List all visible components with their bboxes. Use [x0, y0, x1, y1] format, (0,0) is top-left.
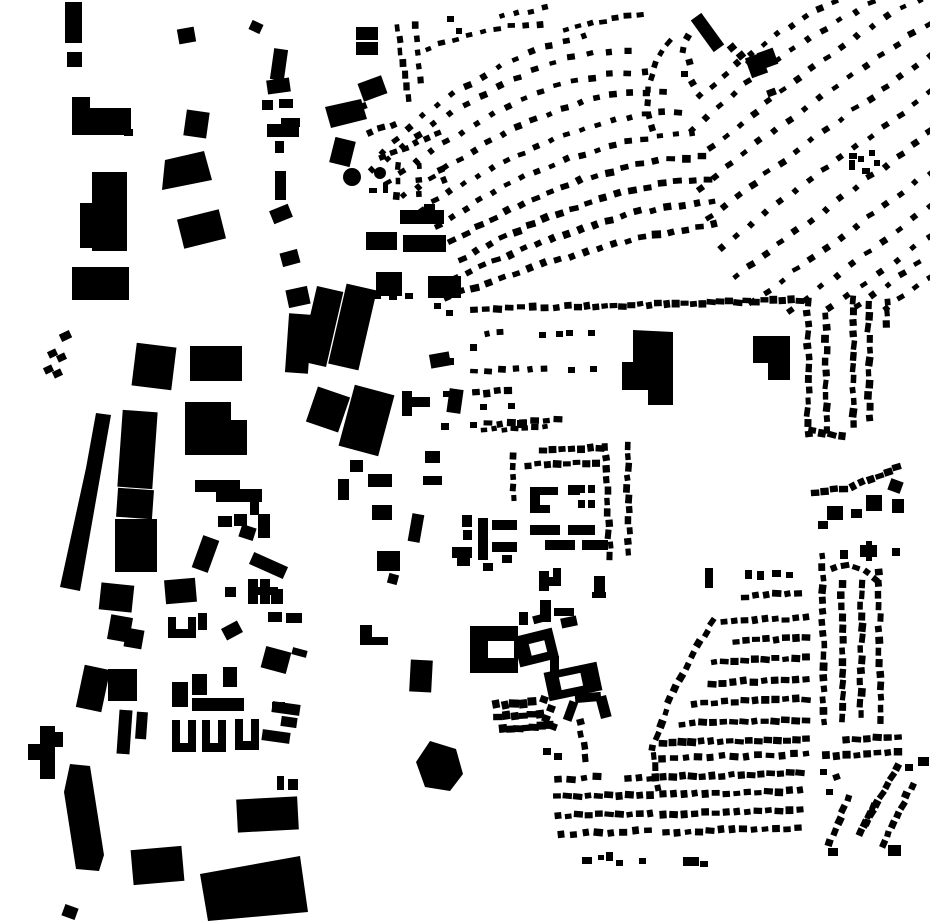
- house-footprint: [553, 416, 562, 423]
- house-footprint: [472, 389, 480, 396]
- house-footprint: [534, 461, 541, 467]
- house-footprint: [806, 353, 813, 360]
- house-footprint: [747, 772, 756, 779]
- house-footprint: [554, 812, 561, 819]
- house-footprint: [849, 319, 857, 326]
- house-footprint: [527, 697, 537, 706]
- building-footprint: [192, 674, 207, 695]
- house-footprint: [415, 177, 422, 183]
- house-footprint: [769, 296, 777, 304]
- house-footprint: [811, 489, 820, 496]
- house-footprint: [850, 363, 856, 372]
- house-footprint: [482, 306, 490, 312]
- house-footprint: [739, 825, 747, 832]
- building-footprint: [492, 542, 517, 552]
- house-footprint: [663, 300, 670, 309]
- house-footprint: [840, 636, 847, 644]
- house-footprint: [858, 655, 866, 664]
- house-footprint: [498, 366, 506, 373]
- house-footprint: [648, 744, 656, 751]
- house-footprint: [773, 737, 782, 745]
- house-footprint: [851, 340, 858, 350]
- building-footprint: [483, 563, 493, 571]
- house-footprint: [821, 641, 827, 649]
- house-footprint: [720, 619, 727, 625]
- house-footprint: [751, 718, 758, 725]
- house-footprint: [680, 810, 688, 818]
- house-footprint: [504, 387, 512, 394]
- house-footprint: [670, 790, 677, 798]
- building-footprint: [820, 769, 827, 775]
- building-footprint: [457, 558, 470, 566]
- building-footprint: [556, 331, 563, 337]
- house-footprint: [818, 619, 825, 626]
- house-footprint: [573, 460, 581, 465]
- house-footprint: [602, 443, 608, 451]
- house-footprint: [824, 415, 830, 422]
- house-footprint: [718, 773, 726, 780]
- house-footprint: [708, 771, 716, 780]
- building-footprint: [250, 502, 259, 515]
- house-footprint: [819, 662, 827, 671]
- house-footprint: [627, 302, 635, 308]
- building-footprint: [369, 188, 377, 193]
- building-footprint: [818, 521, 828, 529]
- house-footprint: [785, 806, 793, 814]
- house-footprint: [839, 658, 846, 666]
- building-footprint: [411, 397, 430, 407]
- building-footprint: [446, 310, 453, 316]
- building-footprint: [862, 168, 870, 174]
- house-footprint: [625, 791, 634, 799]
- house-footprint: [687, 738, 697, 747]
- house-footprint: [605, 519, 613, 527]
- house-footprint: [406, 94, 412, 102]
- house-footprint: [865, 312, 873, 321]
- house-footprint: [802, 653, 810, 660]
- house-footprint: [772, 825, 780, 832]
- house-footprint: [850, 352, 857, 361]
- house-footprint: [777, 770, 785, 777]
- house-footprint: [669, 811, 678, 818]
- house-footprint: [582, 754, 589, 763]
- house-footprint: [704, 177, 713, 183]
- house-footprint: [819, 674, 827, 681]
- house-footprint: [867, 403, 874, 411]
- house-footprint: [744, 809, 751, 816]
- house-footprint: [875, 637, 883, 645]
- house-footprint: [819, 597, 826, 604]
- house-footprint: [583, 302, 590, 310]
- building-footprint: [443, 391, 450, 397]
- house-footprint: [770, 717, 780, 725]
- building-footprint: [218, 516, 232, 527]
- house-footprint: [805, 397, 810, 404]
- building-footprint: [275, 141, 284, 153]
- house-footprint: [691, 810, 699, 817]
- house-footprint: [645, 86, 651, 92]
- building-footprint: [588, 485, 595, 493]
- house-footprint: [652, 762, 658, 771]
- house-footprint: [594, 793, 603, 799]
- building-footprint: [578, 485, 585, 493]
- house-footprint: [805, 297, 812, 306]
- house-footprint: [625, 453, 631, 460]
- house-footprint: [873, 750, 881, 756]
- house-footprint: [821, 685, 828, 692]
- house-footprint: [872, 734, 882, 742]
- house-footprint: [867, 335, 873, 343]
- house-footprint: [823, 392, 828, 400]
- house-footprint: [698, 300, 706, 307]
- house-footprint: [876, 671, 884, 678]
- house-footprint: [838, 603, 844, 611]
- building-footprint: [578, 500, 585, 508]
- house-footprint: [509, 699, 520, 707]
- house-footprint: [584, 792, 591, 799]
- building-footprint: [530, 525, 560, 535]
- building-footprint: [372, 505, 392, 520]
- house-footprint: [510, 474, 516, 480]
- building-footprint: [462, 515, 472, 527]
- house-footprint: [593, 828, 603, 836]
- house-footprint: [721, 697, 729, 704]
- house-footprint: [539, 447, 547, 453]
- house-footprint: [701, 790, 709, 798]
- house-footprint: [626, 89, 633, 96]
- house-footprint: [642, 68, 649, 75]
- house-footprint: [491, 426, 497, 432]
- building-footprint: [545, 540, 575, 550]
- building-footprint: [588, 330, 595, 336]
- house-footprint: [644, 99, 651, 106]
- house-footprint: [802, 676, 810, 683]
- house-footprint: [772, 590, 782, 597]
- building-footprint: [425, 451, 440, 463]
- house-footprint: [762, 591, 770, 599]
- house-footprint: [697, 737, 704, 744]
- house-footprint: [659, 790, 667, 797]
- building-footprint: [680, 47, 687, 54]
- house-footprint: [802, 634, 811, 641]
- building-footprint: [840, 550, 848, 559]
- house-footprint: [745, 737, 753, 744]
- building-footprint: [338, 479, 349, 500]
- house-footprint: [791, 655, 800, 663]
- house-footprint: [712, 790, 720, 796]
- house-footprint: [698, 773, 705, 780]
- house-footprint: [544, 461, 552, 469]
- building-footprint: [376, 272, 402, 296]
- house-footprint: [635, 774, 642, 782]
- house-footprint: [820, 575, 826, 582]
- house-footprint: [766, 753, 775, 759]
- house-footprint: [857, 602, 863, 610]
- house-footprint: [663, 202, 672, 210]
- house-footprint: [729, 719, 738, 725]
- house-footprint: [484, 368, 492, 374]
- house-footprint: [783, 738, 791, 744]
- building-footprint: [55, 732, 63, 747]
- building-footprint: [582, 857, 592, 864]
- house-footprint: [717, 738, 724, 745]
- house-footprint: [877, 716, 883, 724]
- house-footprint: [606, 552, 612, 561]
- house-footprint: [801, 697, 811, 704]
- house-footprint: [527, 711, 537, 717]
- house-footprint: [604, 791, 613, 798]
- building-footprint: [275, 171, 286, 200]
- house-footprint: [668, 773, 677, 781]
- building-footprint: [849, 153, 857, 159]
- house-footprint: [858, 688, 866, 697]
- house-footprint: [786, 786, 794, 794]
- house-footprint: [802, 718, 811, 724]
- building-footprint: [286, 613, 302, 623]
- house-footprint: [610, 303, 618, 308]
- house-footprint: [741, 617, 749, 623]
- building-footprint: [131, 846, 185, 885]
- house-footprint: [529, 302, 537, 310]
- house-footprint: [806, 386, 813, 393]
- house-footprint: [577, 445, 585, 453]
- building-footprint: [271, 589, 283, 604]
- house-footprint: [732, 639, 740, 645]
- house-footprint: [761, 615, 768, 623]
- house-footprint: [752, 637, 760, 642]
- house-footprint: [742, 637, 750, 644]
- house-footprint: [784, 590, 791, 597]
- house-footprint: [681, 227, 689, 235]
- house-footprint: [566, 776, 576, 783]
- house-footprint: [864, 391, 872, 400]
- building-footprint: [639, 858, 646, 864]
- building-footprint: [190, 346, 242, 381]
- building-footprint: [492, 520, 517, 530]
- house-footprint: [627, 527, 633, 534]
- house-footprint: [626, 811, 633, 817]
- house-footprint: [849, 330, 857, 337]
- house-footprint: [839, 703, 846, 711]
- house-footprint: [752, 591, 760, 598]
- house-footprint: [850, 420, 856, 428]
- house-footprint: [638, 234, 647, 241]
- house-footprint: [511, 495, 516, 501]
- house-footprint: [781, 716, 790, 723]
- house-footprint: [884, 309, 890, 316]
- house-footprint: [830, 485, 839, 492]
- house-footprint: [623, 12, 631, 18]
- house-footprint: [557, 830, 565, 838]
- house-footprint: [743, 789, 751, 796]
- house-footprint: [716, 298, 725, 304]
- building-footprint: [164, 578, 197, 605]
- house-footprint: [518, 699, 527, 709]
- house-footprint: [818, 563, 825, 571]
- house-footprint: [585, 812, 593, 818]
- house-footprint: [519, 419, 527, 425]
- building-footprint: [268, 612, 282, 622]
- building-footprint: [67, 52, 82, 67]
- building-footprint: [705, 568, 713, 588]
- house-footprint: [659, 810, 667, 818]
- house-footprint: [609, 91, 617, 98]
- building-footprint: [185, 402, 231, 455]
- building-footprint: [99, 582, 135, 612]
- house-footprint: [783, 826, 791, 832]
- house-footprint: [796, 806, 803, 813]
- house-footprint: [894, 748, 902, 755]
- house-footprint: [687, 772, 697, 780]
- house-footprint: [679, 772, 686, 780]
- house-footprint: [883, 734, 891, 741]
- house-footprint: [501, 427, 507, 433]
- house-footprint: [719, 719, 727, 725]
- house-footprint: [717, 825, 724, 833]
- house-footprint: [838, 432, 846, 441]
- house-footprint: [611, 14, 619, 21]
- house-footprint: [678, 722, 685, 728]
- house-footprint: [496, 420, 503, 428]
- house-footprint: [865, 301, 871, 309]
- building-footprint: [598, 855, 604, 860]
- house-footprint: [672, 300, 680, 308]
- building-footprint: [350, 460, 363, 472]
- building-footprint: [72, 267, 129, 300]
- house-footprint: [582, 828, 589, 836]
- house-footprint: [794, 590, 802, 597]
- house-footprint: [669, 739, 677, 747]
- house-footprint: [673, 131, 680, 137]
- building-footprint: [116, 488, 154, 519]
- building-footprint: [124, 129, 133, 136]
- house-footprint: [757, 770, 765, 777]
- house-footprint: [730, 658, 738, 665]
- house-footprint: [659, 89, 667, 95]
- house-footprint: [802, 613, 809, 621]
- house-footprint: [542, 424, 548, 430]
- house-footprint: [605, 529, 612, 539]
- building-footprint: [441, 423, 449, 430]
- circular-tank-footprint: [343, 168, 361, 186]
- house-footprint: [857, 667, 865, 674]
- house-footprint: [558, 446, 566, 452]
- house-footprint: [624, 48, 631, 54]
- house-footprint: [820, 696, 826, 703]
- house-footprint: [750, 679, 759, 686]
- building-footprint: [132, 343, 177, 391]
- house-footprint: [651, 752, 657, 760]
- house-footprint: [782, 617, 790, 622]
- house-footprint: [733, 791, 740, 797]
- building-footprint: [588, 500, 595, 508]
- house-footprint: [754, 790, 762, 796]
- house-footprint: [680, 790, 688, 798]
- house-footprint: [625, 516, 632, 524]
- building-footprint: [874, 160, 880, 166]
- house-footprint: [496, 329, 503, 335]
- house-footprint: [416, 191, 422, 197]
- house-footprint: [821, 335, 829, 343]
- house-footprint: [643, 184, 652, 191]
- house-footprint: [510, 463, 516, 470]
- house-footprint: [573, 793, 583, 800]
- house-footprint: [502, 710, 511, 719]
- house-footprint: [536, 21, 543, 28]
- building-footprint: [549, 577, 561, 586]
- house-footprint: [735, 739, 745, 745]
- house-footprint: [700, 700, 708, 706]
- house-footprint: [740, 658, 749, 664]
- house-footprint: [625, 494, 632, 503]
- building-footprint: [279, 99, 293, 108]
- house-footprint: [740, 697, 749, 704]
- building-footprint: [447, 16, 454, 22]
- house-footprint: [567, 53, 576, 60]
- house-footprint: [625, 462, 632, 471]
- house-footprint: [791, 717, 800, 724]
- house-footprint: [695, 224, 704, 230]
- building-footprint: [40, 726, 55, 779]
- building-footprint: [892, 548, 900, 556]
- house-footprint: [731, 617, 738, 624]
- house-footprint: [678, 202, 686, 210]
- house-footprint: [416, 63, 422, 70]
- house-footprint: [804, 419, 811, 427]
- house-footprint: [842, 736, 850, 744]
- house-footprint: [761, 696, 769, 704]
- house-footprint: [803, 310, 811, 317]
- house-footprint: [527, 366, 533, 373]
- house-footprint: [603, 476, 610, 484]
- house-footprint: [761, 719, 769, 724]
- building-footprint: [905, 764, 913, 771]
- building-footprint: [226, 420, 247, 455]
- building-footprint: [869, 150, 875, 156]
- house-footprint: [740, 676, 748, 684]
- house-footprint: [772, 615, 779, 622]
- house-footprint: [581, 775, 588, 782]
- house-footprint: [706, 754, 714, 762]
- house-footprint: [782, 696, 789, 702]
- building-footprint: [373, 293, 381, 299]
- house-footprint: [492, 699, 501, 708]
- building-footprint: [543, 748, 551, 755]
- house-footprint: [394, 24, 399, 32]
- building-footprint: [434, 303, 441, 309]
- house-footprint: [822, 369, 830, 376]
- house-footprint: [765, 807, 772, 813]
- building-footprint: [866, 541, 872, 561]
- building-footprint: [786, 572, 793, 578]
- house-footprint: [399, 59, 406, 67]
- house-footprint: [397, 36, 404, 44]
- courtyard-patch: [488, 641, 514, 658]
- house-footprint: [859, 580, 866, 589]
- house-footprint: [673, 829, 681, 837]
- building-footprint: [519, 612, 528, 625]
- building-footprint: [554, 608, 574, 616]
- house-footprint: [396, 178, 401, 185]
- house-footprint: [531, 424, 538, 430]
- circular-tank-footprint: [374, 167, 386, 179]
- house-footprint: [839, 714, 845, 723]
- house-footprint: [877, 681, 884, 690]
- building-footprint: [80, 203, 92, 248]
- house-footprint: [510, 712, 519, 721]
- building-footprint: [402, 391, 412, 416]
- house-footprint: [698, 153, 707, 159]
